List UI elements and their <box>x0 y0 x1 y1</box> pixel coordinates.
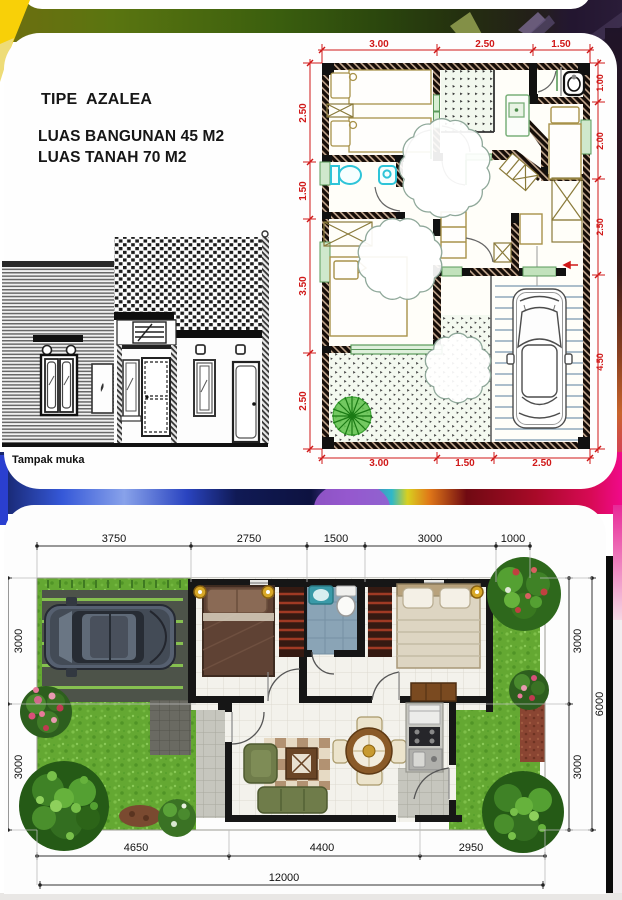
svg-text:4.50: 4.50 <box>595 353 605 371</box>
svg-text:1.00: 1.00 <box>595 74 605 92</box>
svg-text:3000: 3000 <box>418 533 442 545</box>
svg-text:4650: 4650 <box>124 842 148 854</box>
svg-text:2.50: 2.50 <box>298 103 309 123</box>
svg-text:2.00: 2.00 <box>595 132 605 150</box>
svg-text:1.50: 1.50 <box>298 181 309 201</box>
svg-text:6000: 6000 <box>594 692 606 716</box>
svg-text:2950: 2950 <box>459 842 483 854</box>
svg-text:1000: 1000 <box>501 533 525 545</box>
svg-text:2.50: 2.50 <box>298 391 309 411</box>
svg-text:1500: 1500 <box>324 533 348 545</box>
svg-text:12000: 12000 <box>269 872 300 884</box>
svg-text:2.50: 2.50 <box>475 39 495 50</box>
svg-text:3750: 3750 <box>102 533 126 545</box>
svg-text:3.00: 3.00 <box>369 39 389 50</box>
svg-text:3.00: 3.00 <box>369 458 389 469</box>
svg-text:4400: 4400 <box>310 842 334 854</box>
svg-text:3000: 3000 <box>572 755 584 779</box>
svg-text:1.50: 1.50 <box>455 458 475 469</box>
svg-text:3000: 3000 <box>13 755 25 779</box>
svg-text:2750: 2750 <box>237 533 261 545</box>
svg-text:1.50: 1.50 <box>551 39 571 50</box>
svg-text:Tampak muka: Tampak muka <box>12 454 85 466</box>
svg-text:3.50: 3.50 <box>298 276 309 296</box>
svg-text:2.50: 2.50 <box>532 458 552 469</box>
svg-text:3000: 3000 <box>13 629 25 653</box>
svg-text:2.50: 2.50 <box>595 218 605 236</box>
svg-text:3000: 3000 <box>572 629 584 653</box>
